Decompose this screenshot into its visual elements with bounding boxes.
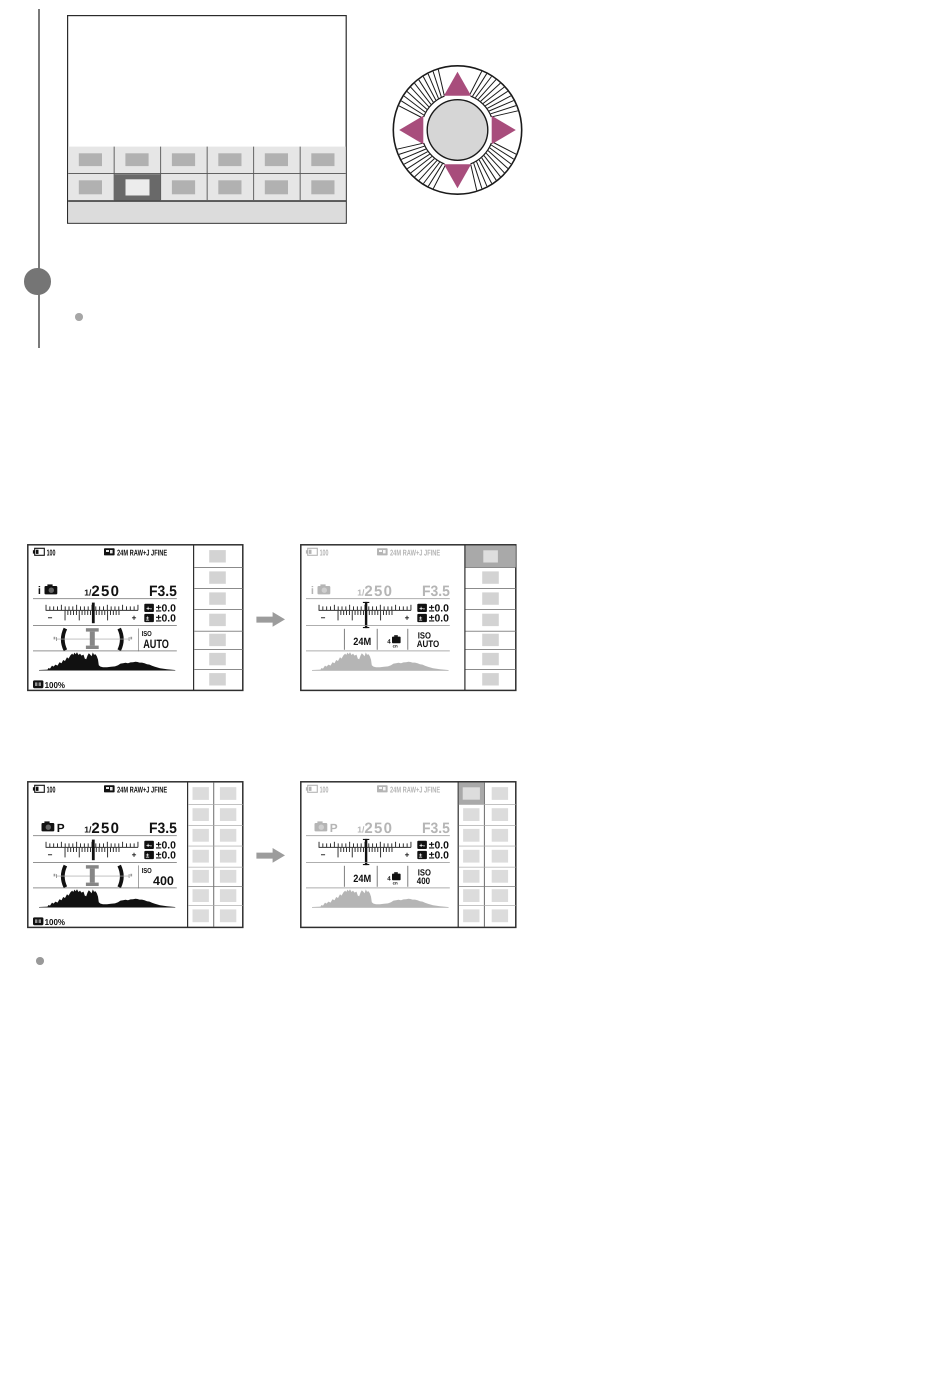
- svg-text:+-: +-: [419, 605, 425, 612]
- svg-text:24M: 24M: [353, 635, 371, 647]
- svg-text:±0.0: ±0.0: [428, 613, 448, 624]
- svg-text:±: ±: [418, 615, 422, 622]
- svg-text:+: +: [132, 613, 137, 622]
- svg-text:i: i: [310, 584, 313, 596]
- svg-text:24M RAW+J JFINE: 24M RAW+J JFINE: [117, 784, 167, 794]
- svg-text:+-: +-: [146, 842, 152, 849]
- svg-text:100: 100: [319, 547, 328, 557]
- svg-text:250: 250: [91, 820, 120, 837]
- svg-text:24M RAW+J JFINE: 24M RAW+J JFINE: [117, 547, 167, 557]
- svg-text:AUTO: AUTO: [416, 638, 438, 649]
- svg-text:250: 250: [91, 582, 120, 599]
- svg-text:±0.0: ±0.0: [156, 613, 176, 624]
- svg-text:24M RAW+J JFINE: 24M RAW+J JFINE: [390, 784, 440, 794]
- svg-text:+: +: [404, 613, 409, 622]
- svg-text:4: 4: [387, 638, 391, 645]
- svg-text:±: ±: [146, 853, 150, 860]
- svg-text:F3.5: F3.5: [149, 820, 177, 837]
- svg-text:F3.5: F3.5: [149, 582, 177, 599]
- svg-text:−: −: [320, 613, 325, 622]
- svg-text:1/: 1/: [357, 587, 365, 597]
- svg-text:100: 100: [47, 784, 56, 794]
- svg-text:±0.0: ±0.0: [156, 851, 176, 862]
- svg-text:+-: +-: [419, 842, 425, 849]
- svg-text:ISO: ISO: [142, 866, 152, 875]
- svg-text:F3.5: F3.5: [422, 582, 450, 599]
- svg-text:i: i: [38, 584, 41, 596]
- svg-text:±: ±: [418, 853, 422, 860]
- svg-text:P: P: [57, 821, 65, 835]
- svg-text:4: 4: [387, 876, 391, 883]
- svg-text:±: ±: [146, 615, 150, 622]
- svg-text:1/: 1/: [357, 825, 365, 835]
- svg-text:−: −: [320, 850, 325, 859]
- svg-text:24M RAW+J JFINE: 24M RAW+J JFINE: [390, 547, 440, 557]
- svg-text:cn: cn: [392, 643, 397, 648]
- svg-text:±0.0: ±0.0: [428, 603, 448, 614]
- svg-text:−: −: [48, 613, 53, 622]
- svg-text:AUTO: AUTO: [143, 636, 169, 650]
- svg-text:F3.5: F3.5: [422, 820, 450, 837]
- svg-text:+: +: [404, 851, 409, 860]
- svg-text:100%: 100%: [45, 680, 66, 690]
- svg-text:+-: +-: [146, 605, 152, 612]
- svg-text:400: 400: [416, 875, 429, 886]
- svg-text:+: +: [132, 851, 137, 860]
- svg-text:P: P: [329, 821, 337, 835]
- svg-text:−: −: [48, 850, 53, 859]
- svg-text:100%: 100%: [45, 917, 66, 927]
- svg-text:24M: 24M: [353, 873, 371, 885]
- svg-text:250: 250: [364, 582, 393, 599]
- svg-text:±0.0: ±0.0: [156, 603, 176, 614]
- svg-text:400: 400: [153, 874, 174, 888]
- svg-text:±0.0: ±0.0: [428, 851, 448, 862]
- svg-text:250: 250: [364, 820, 393, 837]
- svg-text:100: 100: [319, 784, 328, 794]
- svg-text:100: 100: [47, 547, 56, 557]
- svg-text:cn: cn: [392, 880, 397, 885]
